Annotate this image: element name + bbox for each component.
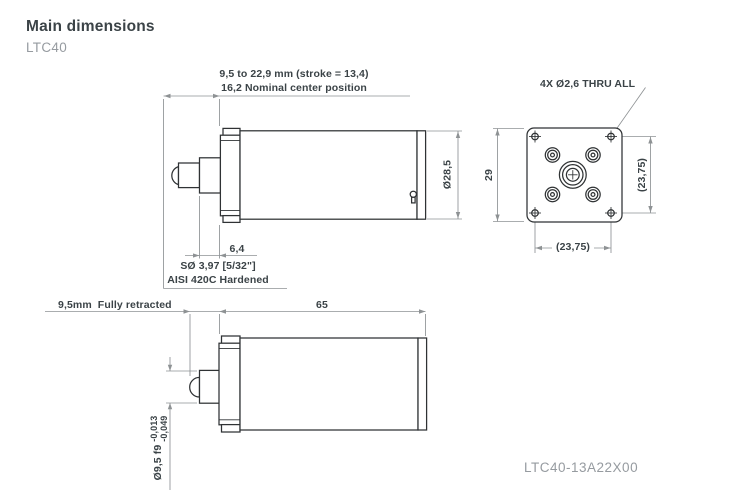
shaft-diameter-value: Ø9,5 f9: [152, 445, 166, 481]
stroke-range-label: 9,5 to 22,9 mm (stroke = 13,4): [199, 68, 389, 82]
sensor-body-retracted: [240, 338, 418, 430]
flange-size-label: 29: [484, 165, 496, 185]
tip-sphere-label: SØ 3,97 [5/32"]: [153, 260, 283, 274]
retracted-view-drawing: [190, 336, 427, 432]
nominal-center-label: 16,2 Nominal center position: [199, 82, 389, 96]
hole-spacing-vertical-label: (23,75): [637, 151, 649, 199]
center-bearing-boss: [559, 161, 586, 188]
shaft-diameter-label: Ø9,5 f9 -0,013 -0,049: [146, 410, 172, 486]
tip-material-label: AISI 420C Hardened: [153, 274, 283, 288]
shaft-tolerance-upper: -0,013: [149, 416, 159, 442]
collar-width-label: 6,4: [222, 243, 252, 257]
retracted-length-label: 9,5mm Fully retracted: [58, 299, 172, 313]
probe-ball-tip-retracted: [190, 377, 200, 397]
sensor-body: [240, 131, 417, 219]
shaft-tolerance-stack: -0,013 -0,049: [149, 416, 169, 442]
body-diameter-label: Ø28,5: [442, 154, 455, 196]
extended-view-drawing: [172, 128, 426, 222]
datasheet-page: Main dimensions LTC40: [0, 0, 750, 497]
mounting-flange: [220, 135, 240, 216]
body-length-label: 65: [300, 299, 344, 313]
vent-detail: [410, 191, 416, 197]
mounting-flange-retracted: [219, 343, 240, 425]
end-cap-retracted: [418, 338, 427, 430]
hole-spacing-horizontal-label: (23,75): [546, 241, 600, 255]
probe-collar-retracted: [200, 370, 220, 403]
mounting-holes-label: 4X Ø2,6 THRU ALL: [540, 78, 635, 92]
probe-shaft: [179, 163, 200, 188]
end-cap: [417, 131, 426, 219]
shaft-tolerance-lower: -0,049: [159, 416, 169, 442]
probe-ball-tip: [172, 167, 179, 185]
part-number: LTC40-13A22X00: [524, 460, 638, 475]
front-view-drawing: [527, 128, 622, 222]
probe-collar: [200, 158, 221, 193]
